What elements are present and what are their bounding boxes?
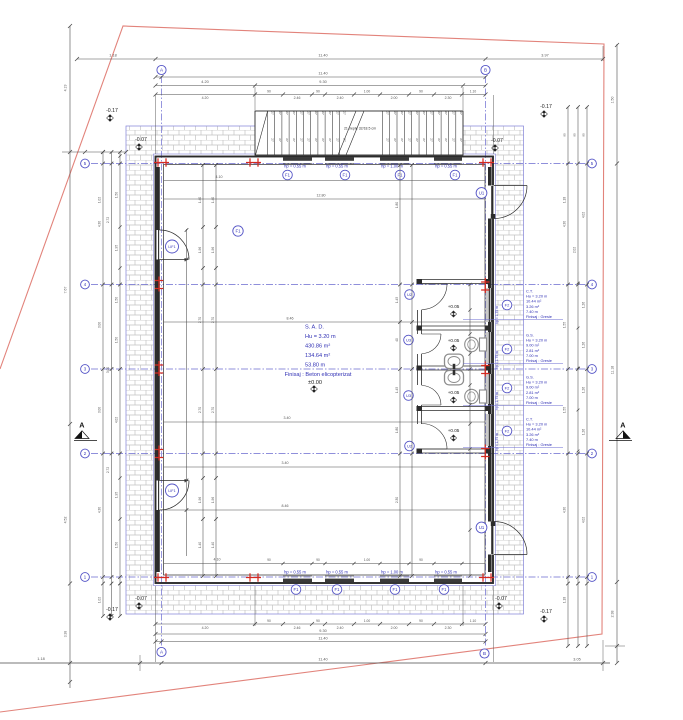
svg-text:27: 27 bbox=[271, 138, 275, 142]
svg-text:4.02: 4.02 bbox=[115, 417, 119, 423]
svg-text:11.40: 11.40 bbox=[318, 658, 327, 662]
svg-text:1.40: 1.40 bbox=[211, 542, 215, 548]
svg-text:2.72: 2.72 bbox=[106, 217, 110, 223]
svg-text:1.80: 1.80 bbox=[395, 202, 399, 208]
svg-text:4.20: 4.20 bbox=[201, 80, 208, 84]
svg-text:2.40: 2.40 bbox=[337, 626, 344, 630]
svg-text:F1: F1 bbox=[343, 173, 349, 178]
svg-text:3.00: 3.00 bbox=[98, 407, 102, 413]
svg-text:B: B bbox=[483, 651, 486, 656]
svg-text:2.30: 2.30 bbox=[445, 626, 452, 630]
svg-text:2.70: 2.70 bbox=[198, 317, 202, 323]
svg-text:-0.17: -0.17 bbox=[540, 104, 552, 110]
svg-text:+0.05: +0.05 bbox=[448, 428, 460, 433]
svg-text:27: 27 bbox=[415, 138, 419, 142]
svg-text:27: 27 bbox=[292, 111, 296, 115]
svg-text:21 trepte 32/18.5 cm: 21 trepte 32/18.5 cm bbox=[344, 127, 376, 131]
svg-text:F2: F2 bbox=[505, 347, 510, 352]
svg-text:27: 27 bbox=[278, 111, 282, 115]
svg-text:27: 27 bbox=[400, 111, 404, 115]
svg-text:1.80: 1.80 bbox=[395, 427, 399, 433]
svg-text:U1: U1 bbox=[479, 525, 485, 530]
svg-text:90: 90 bbox=[316, 619, 320, 623]
svg-text:hp = 1.75 m: hp = 1.75 m bbox=[495, 351, 499, 369]
svg-text:1.02: 1.02 bbox=[98, 597, 102, 603]
svg-text:27: 27 bbox=[321, 138, 325, 142]
svg-text:27: 27 bbox=[437, 111, 441, 115]
svg-text:27: 27 bbox=[452, 111, 456, 115]
svg-text:1.18: 1.18 bbox=[563, 597, 567, 603]
svg-text:-0.07: -0.07 bbox=[491, 138, 503, 144]
svg-text:27: 27 bbox=[328, 111, 332, 115]
svg-text:Finisaj : Gresie: Finisaj : Gresie bbox=[526, 314, 552, 319]
svg-text:27: 27 bbox=[299, 111, 303, 115]
svg-text:±0.00: ±0.00 bbox=[308, 380, 322, 386]
svg-text:90: 90 bbox=[419, 90, 423, 94]
svg-text:4.10: 4.10 bbox=[214, 558, 221, 562]
svg-text:1.96: 1.96 bbox=[211, 497, 215, 503]
svg-text:3.00: 3.00 bbox=[98, 322, 102, 328]
svg-text:1.00: 1.00 bbox=[364, 619, 371, 623]
svg-text:1.10: 1.10 bbox=[470, 619, 477, 623]
svg-text:1.10: 1.10 bbox=[470, 90, 477, 94]
svg-text:-0.07: -0.07 bbox=[495, 596, 507, 602]
svg-text:1.18: 1.18 bbox=[109, 54, 116, 58]
svg-text:27: 27 bbox=[278, 138, 282, 142]
svg-text:1.50: 1.50 bbox=[611, 97, 615, 104]
svg-text:2.70: 2.70 bbox=[198, 407, 202, 413]
svg-text:2.46: 2.46 bbox=[294, 626, 301, 630]
svg-text:3.05: 3.05 bbox=[573, 658, 580, 662]
svg-text:1.02: 1.02 bbox=[98, 197, 102, 203]
svg-text:4.30: 4.30 bbox=[563, 221, 567, 227]
svg-text:F1: F1 bbox=[442, 587, 448, 592]
svg-text:8.46: 8.46 bbox=[287, 317, 294, 321]
svg-text:-0.17: -0.17 bbox=[540, 609, 552, 615]
svg-text:F1: F1 bbox=[335, 587, 341, 592]
svg-text:2.72: 2.72 bbox=[106, 467, 110, 473]
svg-text:Hu = 3.20 m: Hu = 3.20 m bbox=[305, 334, 336, 340]
svg-text:F1: F1 bbox=[453, 173, 459, 178]
svg-text:90: 90 bbox=[419, 558, 423, 562]
svg-text:2.30: 2.30 bbox=[445, 96, 452, 100]
svg-text:1.96: 1.96 bbox=[198, 497, 202, 503]
svg-text:27: 27 bbox=[321, 111, 325, 115]
svg-text:1.18: 1.18 bbox=[37, 657, 44, 661]
svg-text:F1: F1 bbox=[294, 587, 300, 592]
svg-text:27: 27 bbox=[335, 138, 339, 142]
svg-text:-0.17: -0.17 bbox=[106, 607, 118, 613]
svg-text:Finisaj : Gresie: Finisaj : Gresie bbox=[526, 400, 552, 405]
svg-text:S. A. D.: S. A. D. bbox=[305, 325, 324, 331]
svg-text:A: A bbox=[620, 421, 625, 430]
svg-text:2.38: 2.38 bbox=[611, 611, 615, 618]
svg-text:1.26: 1.26 bbox=[582, 302, 586, 308]
svg-text:hp = 0.55 m: hp = 0.55 m bbox=[435, 570, 457, 575]
svg-text:90: 90 bbox=[316, 90, 320, 94]
svg-text:1.26: 1.26 bbox=[582, 429, 586, 435]
svg-text:+0.05: +0.05 bbox=[448, 338, 460, 343]
svg-text:U3: U3 bbox=[406, 338, 412, 343]
svg-text:hp = 1.75 m: hp = 1.75 m bbox=[495, 433, 499, 451]
svg-text:1.95: 1.95 bbox=[115, 492, 119, 498]
svg-text:90: 90 bbox=[573, 133, 577, 137]
svg-text:hp = 0.55 m: hp = 0.55 m bbox=[435, 164, 457, 169]
svg-text:90: 90 bbox=[267, 558, 271, 562]
svg-text:hp = 1.75 m: hp = 1.75 m bbox=[495, 392, 499, 410]
svg-text:11.18: 11.18 bbox=[611, 366, 615, 375]
svg-text:11.40: 11.40 bbox=[318, 637, 327, 641]
svg-text:F2: F2 bbox=[505, 429, 510, 434]
svg-text:A: A bbox=[79, 421, 84, 430]
svg-text:27: 27 bbox=[314, 111, 318, 115]
svg-text:4.19: 4.19 bbox=[64, 85, 68, 92]
svg-text:1.00: 1.00 bbox=[364, 90, 371, 94]
svg-text:Finisaj : Gresie: Finisaj : Gresie bbox=[526, 442, 552, 447]
svg-text:LIF1: LIF1 bbox=[168, 245, 175, 249]
svg-text:27: 27 bbox=[444, 138, 448, 142]
svg-text:27: 27 bbox=[299, 138, 303, 142]
svg-text:27: 27 bbox=[271, 111, 275, 115]
svg-text:1.50: 1.50 bbox=[115, 297, 119, 303]
svg-text:2.02: 2.02 bbox=[573, 247, 577, 253]
svg-text:27: 27 bbox=[459, 138, 463, 142]
svg-text:1.45: 1.45 bbox=[395, 297, 399, 303]
svg-text:1.40: 1.40 bbox=[211, 197, 215, 203]
svg-text:4.30: 4.30 bbox=[98, 221, 102, 227]
svg-text:1.96: 1.96 bbox=[198, 247, 202, 253]
svg-text:1.26: 1.26 bbox=[582, 342, 586, 348]
svg-text:+0.05: +0.05 bbox=[448, 304, 460, 309]
svg-text:27: 27 bbox=[343, 138, 347, 142]
svg-text:1.40: 1.40 bbox=[198, 197, 202, 203]
svg-text:-0.17: -0.17 bbox=[106, 108, 118, 114]
svg-text:27: 27 bbox=[437, 138, 441, 142]
svg-text:27: 27 bbox=[444, 111, 448, 115]
svg-text:1.95: 1.95 bbox=[115, 245, 119, 251]
svg-text:27: 27 bbox=[422, 111, 426, 115]
svg-text:27: 27 bbox=[292, 138, 296, 142]
svg-text:+0.05: +0.05 bbox=[448, 390, 460, 395]
svg-text:4.30: 4.30 bbox=[563, 507, 567, 513]
svg-text:hp = 1.75 m: hp = 1.75 m bbox=[495, 306, 499, 324]
svg-text:F2: F2 bbox=[505, 303, 510, 308]
svg-text:1.50: 1.50 bbox=[115, 337, 119, 343]
svg-text:134.64 m²: 134.64 m² bbox=[305, 353, 330, 359]
svg-text:27: 27 bbox=[452, 138, 456, 142]
svg-text:4.20: 4.20 bbox=[202, 626, 209, 630]
svg-text:27: 27 bbox=[393, 138, 397, 142]
svg-text:F1: F1 bbox=[393, 587, 399, 592]
svg-text:3.97: 3.97 bbox=[541, 54, 548, 58]
svg-text:53.80 m: 53.80 m bbox=[305, 363, 326, 369]
svg-text:8.46: 8.46 bbox=[282, 504, 289, 508]
svg-text:hp = 0.55 m: hp = 0.55 m bbox=[284, 570, 306, 575]
svg-text:430.86 m²: 430.86 m² bbox=[305, 344, 330, 350]
svg-text:1.40: 1.40 bbox=[198, 542, 202, 548]
svg-text:Finisaj : Beton elicopterizat: Finisaj : Beton elicopterizat bbox=[285, 372, 352, 378]
svg-text:27: 27 bbox=[430, 111, 434, 115]
svg-text:4.30: 4.30 bbox=[98, 507, 102, 513]
svg-text:2.70: 2.70 bbox=[211, 317, 215, 323]
svg-text:B: B bbox=[484, 68, 487, 73]
svg-text:9.30: 9.30 bbox=[319, 80, 326, 84]
svg-text:27: 27 bbox=[307, 111, 311, 115]
svg-text:3.38: 3.38 bbox=[64, 631, 68, 638]
svg-text:1.50: 1.50 bbox=[115, 542, 119, 548]
svg-text:27: 27 bbox=[314, 138, 318, 142]
svg-text:11.40: 11.40 bbox=[318, 54, 327, 58]
svg-text:1.26: 1.26 bbox=[582, 387, 586, 393]
svg-text:27: 27 bbox=[385, 138, 389, 142]
svg-text:27: 27 bbox=[343, 111, 347, 115]
svg-text:90: 90 bbox=[267, 90, 271, 94]
svg-text:27: 27 bbox=[430, 138, 434, 142]
svg-text:12.80: 12.80 bbox=[317, 194, 326, 198]
svg-text:40: 40 bbox=[395, 338, 399, 342]
svg-text:90: 90 bbox=[419, 619, 423, 623]
svg-text:1.18: 1.18 bbox=[563, 197, 567, 203]
svg-text:9.30: 9.30 bbox=[319, 629, 326, 633]
svg-text:1.50: 1.50 bbox=[115, 192, 119, 198]
svg-text:4.02: 4.02 bbox=[582, 212, 586, 218]
svg-text:2.30: 2.30 bbox=[395, 497, 399, 503]
svg-text:1.00: 1.00 bbox=[364, 558, 370, 562]
svg-text:90: 90 bbox=[582, 133, 586, 137]
svg-text:27: 27 bbox=[393, 111, 397, 115]
svg-text:2.40: 2.40 bbox=[337, 96, 344, 100]
svg-text:90: 90 bbox=[563, 133, 567, 137]
svg-text:F1: F1 bbox=[235, 229, 241, 234]
svg-text:27: 27 bbox=[285, 138, 289, 142]
svg-text:1.55: 1.55 bbox=[563, 322, 567, 328]
svg-text:27: 27 bbox=[285, 111, 289, 115]
svg-text:-0.07: -0.07 bbox=[135, 137, 147, 143]
svg-text:4.10: 4.10 bbox=[216, 175, 223, 179]
svg-text:2.00: 2.00 bbox=[391, 96, 398, 100]
svg-text:4.20: 4.20 bbox=[202, 96, 209, 100]
svg-text:hp = 0.55 m: hp = 0.55 m bbox=[326, 164, 348, 169]
svg-text:Finisaj : Gresie: Finisaj : Gresie bbox=[526, 358, 552, 363]
svg-text:90: 90 bbox=[316, 558, 320, 562]
svg-text:27: 27 bbox=[415, 111, 419, 115]
svg-text:27: 27 bbox=[407, 138, 411, 142]
svg-text:7.67: 7.67 bbox=[64, 287, 68, 294]
svg-text:1.45: 1.45 bbox=[395, 387, 399, 393]
svg-text:3.00: 3.00 bbox=[106, 367, 110, 373]
svg-text:27: 27 bbox=[422, 138, 426, 142]
svg-text:U3: U3 bbox=[406, 393, 412, 398]
svg-text:3.40: 3.40 bbox=[282, 461, 289, 465]
svg-text:3.40: 3.40 bbox=[284, 416, 291, 420]
svg-text:4.02: 4.02 bbox=[582, 517, 586, 523]
svg-text:11.40: 11.40 bbox=[318, 72, 327, 76]
svg-text:27: 27 bbox=[400, 138, 404, 142]
svg-text:F1: F1 bbox=[398, 173, 404, 178]
svg-text:27: 27 bbox=[307, 138, 311, 142]
svg-text:2.00: 2.00 bbox=[391, 626, 398, 630]
svg-text:27: 27 bbox=[407, 111, 411, 115]
svg-text:1.96: 1.96 bbox=[211, 247, 215, 253]
svg-text:F1: F1 bbox=[285, 173, 291, 178]
svg-text:hp = 0.55 m: hp = 0.55 m bbox=[284, 164, 306, 169]
svg-text:-0.07: -0.07 bbox=[135, 596, 147, 602]
svg-text:27: 27 bbox=[335, 111, 339, 115]
svg-text:27: 27 bbox=[385, 111, 389, 115]
svg-text:90: 90 bbox=[267, 619, 271, 623]
svg-text:hp = 0.55 m: hp = 0.55 m bbox=[326, 570, 348, 575]
svg-text:27: 27 bbox=[459, 111, 463, 115]
svg-text:F2: F2 bbox=[505, 386, 510, 391]
svg-text:4.52: 4.52 bbox=[64, 517, 68, 524]
svg-text:U1: U1 bbox=[479, 191, 485, 196]
svg-text:LIF1: LIF1 bbox=[168, 489, 175, 493]
svg-text:27: 27 bbox=[328, 138, 332, 142]
svg-text:2.70: 2.70 bbox=[211, 407, 215, 413]
svg-text:2.46: 2.46 bbox=[294, 96, 301, 100]
svg-text:1.55: 1.55 bbox=[563, 407, 567, 413]
